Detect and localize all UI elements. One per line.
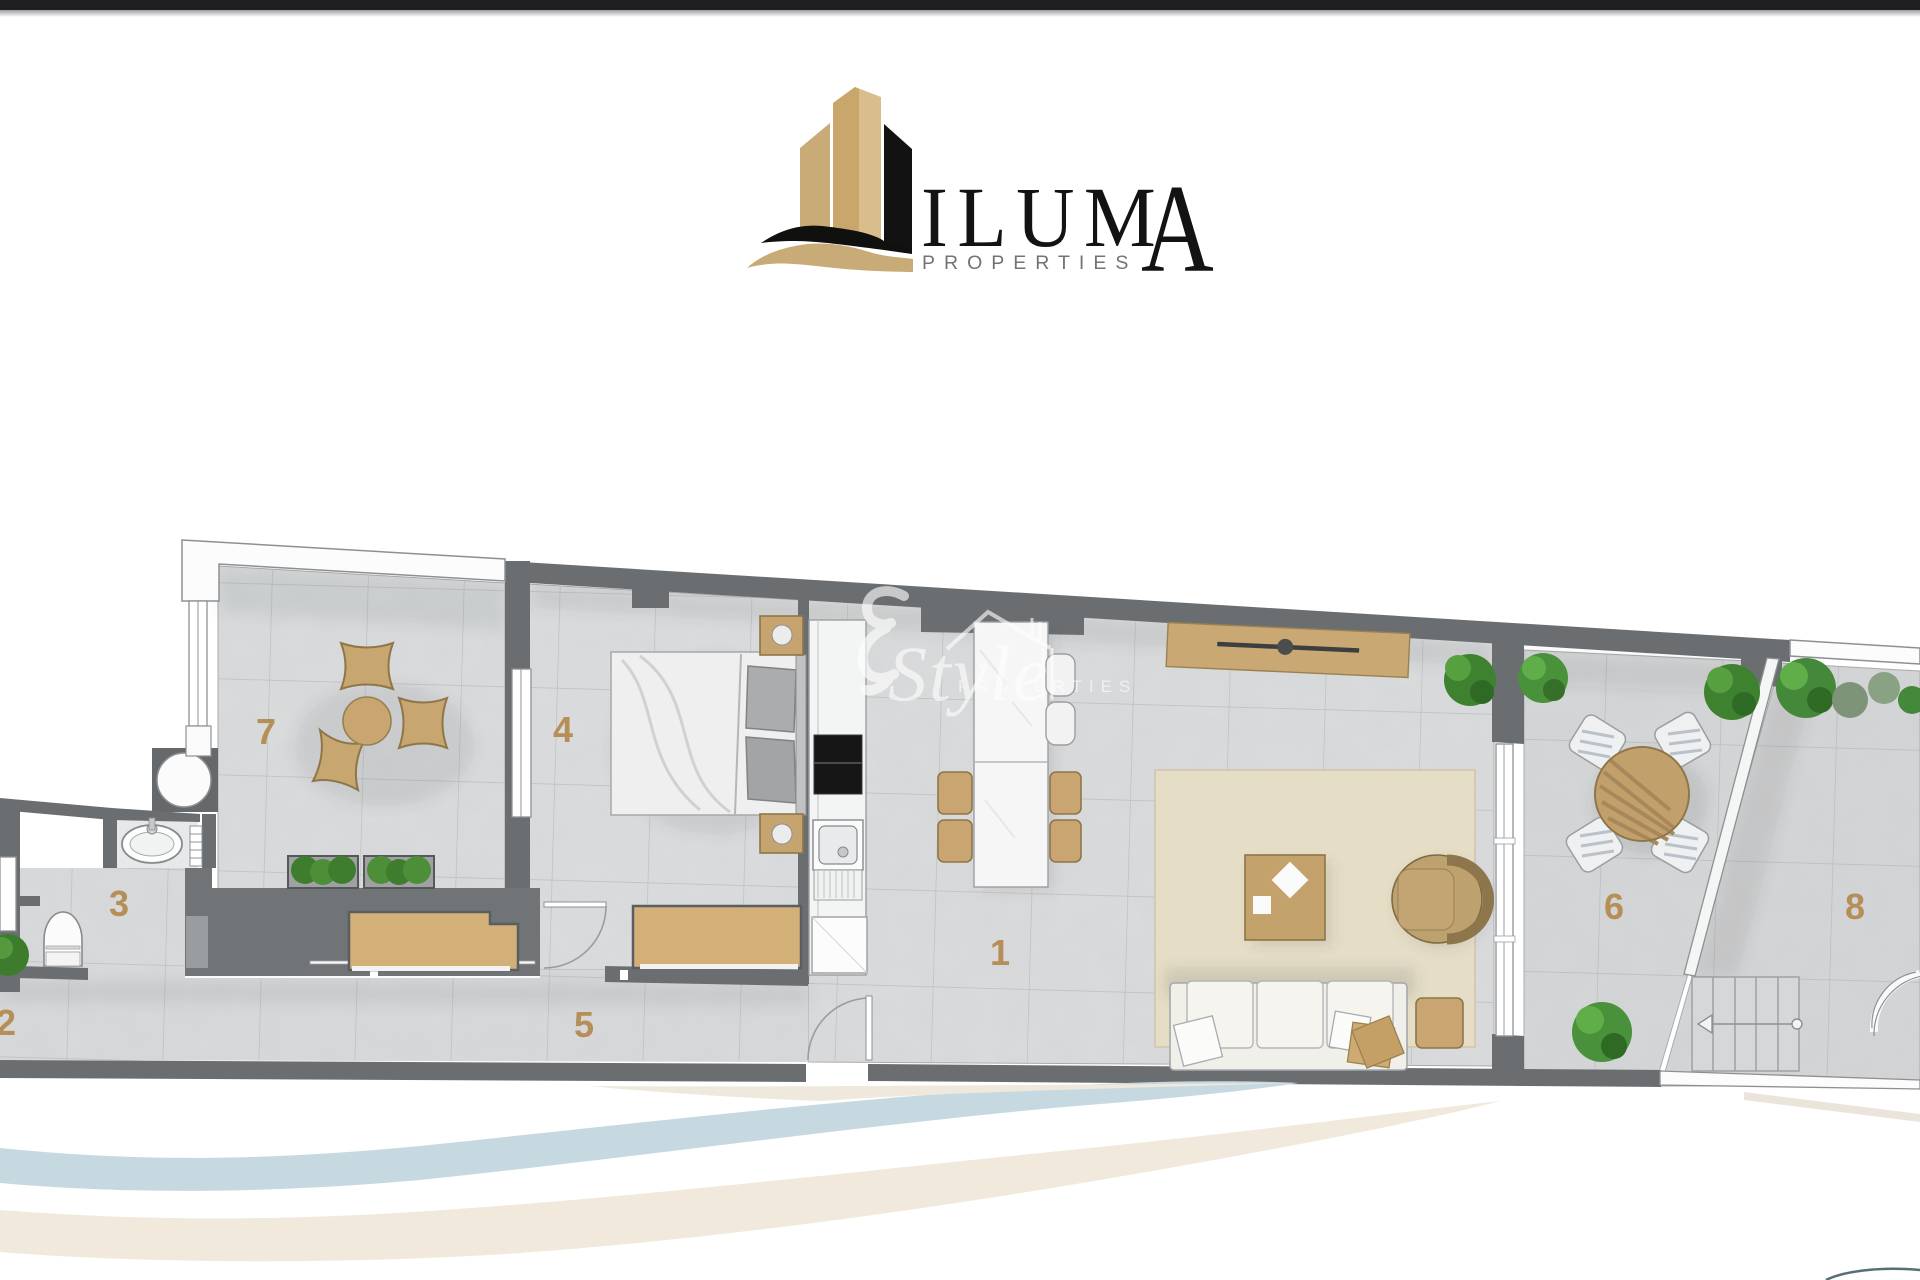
svg-text:Style: Style [888, 630, 1050, 717]
svg-text:7: 7 [256, 711, 276, 752]
svg-text:A: A [1141, 158, 1214, 298]
svg-text:1: 1 [990, 932, 1010, 973]
svg-text:5: 5 [574, 1004, 594, 1045]
svg-text:3: 3 [109, 883, 129, 924]
svg-text:2: 2 [0, 1002, 16, 1043]
svg-text:4: 4 [553, 709, 573, 750]
svg-text:PROPERTIES: PROPERTIES [958, 677, 1137, 696]
svg-text:8: 8 [1845, 886, 1865, 927]
svg-text:PROPERTIES: PROPERTIES [922, 252, 1137, 274]
svg-text:6: 6 [1604, 886, 1624, 927]
